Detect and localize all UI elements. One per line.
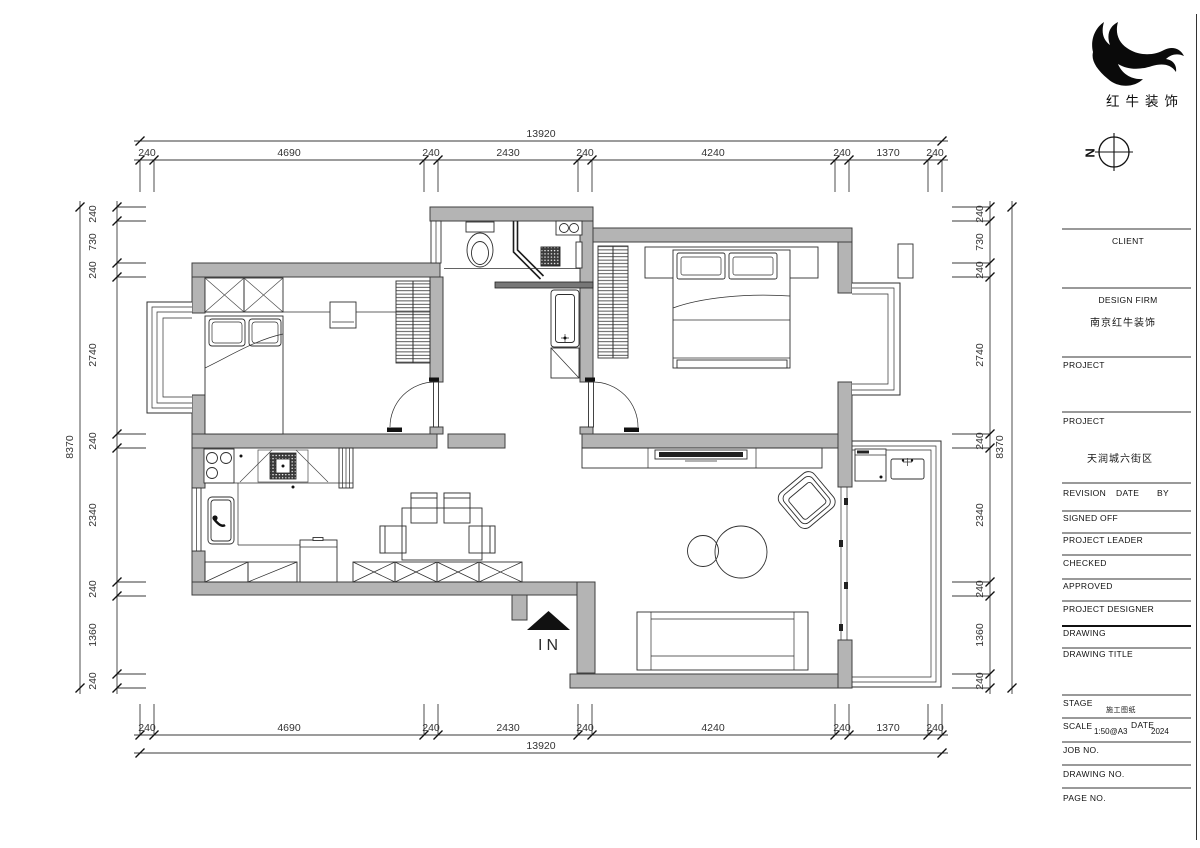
dim: 240 bbox=[974, 580, 986, 598]
dim: 240 bbox=[974, 261, 986, 279]
dim: 4690 bbox=[277, 722, 301, 734]
dim: 1370 bbox=[876, 722, 900, 734]
refrigerator bbox=[300, 538, 337, 583]
kitchen-window bbox=[192, 488, 201, 551]
dim-total-right: 8370 bbox=[994, 435, 1006, 459]
balcony bbox=[855, 449, 924, 481]
radiator bbox=[396, 281, 430, 363]
north-compass-icon: N bbox=[1083, 133, 1133, 171]
vanity-niche bbox=[551, 290, 579, 378]
field-date: DATE bbox=[1116, 488, 1139, 498]
armchair bbox=[775, 468, 838, 531]
dim: 2430 bbox=[496, 722, 520, 734]
dim: 240 bbox=[422, 147, 440, 159]
dim-total-left: 8370 bbox=[64, 435, 76, 459]
dim: 240 bbox=[87, 205, 99, 223]
dim: 240 bbox=[576, 147, 594, 159]
field-stage: STAGE bbox=[1063, 698, 1093, 708]
bathroom-window bbox=[431, 221, 441, 263]
entrance-label: IN bbox=[538, 637, 562, 654]
dim: 2340 bbox=[87, 503, 99, 527]
dim: 240 bbox=[422, 722, 440, 734]
dim-total-top: 13920 bbox=[526, 128, 555, 140]
sofa bbox=[637, 612, 808, 670]
stove bbox=[204, 449, 243, 483]
design-firm-value: 南京红牛装饰 bbox=[1090, 316, 1156, 329]
field-by: BY bbox=[1157, 488, 1169, 498]
tv-cabinet bbox=[582, 448, 822, 468]
shower-partition bbox=[514, 221, 544, 279]
dim: 1360 bbox=[87, 623, 99, 647]
dim: 240 bbox=[833, 147, 851, 159]
bedroom-right bbox=[598, 246, 818, 368]
dim: 730 bbox=[974, 233, 986, 251]
dim: 240 bbox=[87, 261, 99, 279]
dim: 240 bbox=[87, 672, 99, 690]
dim: 4690 bbox=[277, 147, 301, 159]
brand-name: 红牛装饰 bbox=[1106, 94, 1184, 109]
dim: 1360 bbox=[974, 623, 986, 647]
dim: 240 bbox=[87, 580, 99, 598]
bed-double bbox=[645, 247, 818, 368]
dim: 240 bbox=[926, 147, 944, 159]
kitchen bbox=[204, 448, 353, 582]
bedroom-left-door bbox=[387, 378, 439, 433]
field-client: CLIENT bbox=[1112, 236, 1144, 246]
floor-drain bbox=[541, 247, 560, 266]
coffee-tables bbox=[688, 526, 768, 578]
field-drawing: DRAWING bbox=[1063, 628, 1106, 638]
balcony-sliding-door bbox=[839, 487, 848, 640]
date-value: 2024 bbox=[1151, 727, 1169, 736]
doors bbox=[387, 378, 639, 433]
toilet bbox=[466, 222, 494, 267]
dim: 240 bbox=[576, 722, 594, 734]
nightstand bbox=[330, 302, 356, 328]
bedroom-right-door bbox=[585, 378, 639, 433]
radiator-small bbox=[339, 448, 353, 488]
dim: 2340 bbox=[974, 503, 986, 527]
brand-logo-icon bbox=[1092, 22, 1184, 86]
bedroom-left bbox=[205, 278, 430, 434]
bathroom bbox=[444, 221, 593, 378]
field-checked: CHECKED bbox=[1063, 558, 1107, 568]
dim: 240 bbox=[974, 672, 986, 690]
bay-window-right bbox=[852, 283, 900, 395]
field-page-no: PAGE NO. bbox=[1063, 793, 1106, 803]
floor-plan-sheet: IN N bbox=[0, 0, 1200, 848]
field-approved: APPROVED bbox=[1063, 581, 1113, 591]
dim: 240 bbox=[138, 722, 156, 734]
dim: 2740 bbox=[87, 343, 99, 367]
wardrobe bbox=[205, 278, 283, 312]
dim: 240 bbox=[833, 722, 851, 734]
sideboard bbox=[353, 562, 522, 582]
dim: 2430 bbox=[496, 147, 520, 159]
north-label: N bbox=[1083, 148, 1098, 157]
dim: 4240 bbox=[701, 147, 725, 159]
field-project-designer: PROJECT DESIGNER bbox=[1063, 604, 1154, 614]
dim: 240 bbox=[974, 432, 986, 450]
entrance-marker: IN bbox=[527, 611, 570, 654]
field-job-no: JOB NO. bbox=[1063, 745, 1099, 755]
project-value: 天润城六街区 bbox=[1087, 452, 1153, 465]
dim: 240 bbox=[87, 432, 99, 450]
field-design-firm: DESIGN FIRM bbox=[1098, 295, 1157, 305]
base-cabinets bbox=[205, 562, 297, 582]
bay-window-left bbox=[147, 302, 192, 413]
balcony-sink bbox=[891, 458, 924, 479]
field-project-2: PROJECT bbox=[1063, 416, 1105, 426]
field-revision: REVISION bbox=[1063, 488, 1106, 498]
bed-single bbox=[205, 316, 283, 434]
dim: 1370 bbox=[876, 147, 900, 159]
stage-value: 施工图纸 bbox=[1106, 705, 1136, 714]
dim: 2740 bbox=[974, 343, 986, 367]
drawing-canvas: IN N bbox=[0, 0, 1200, 848]
dim: 240 bbox=[926, 722, 944, 734]
dim: 4240 bbox=[701, 722, 725, 734]
counter-front bbox=[495, 282, 593, 288]
field-drawing-no: DRAWING NO. bbox=[1063, 769, 1125, 779]
field-scale: SCALE bbox=[1063, 721, 1092, 731]
scale-value: 1:50@A3 bbox=[1094, 727, 1128, 736]
dining-area bbox=[353, 493, 522, 582]
radiator bbox=[598, 246, 628, 358]
duct-shaft bbox=[898, 244, 913, 278]
kitchen-sink bbox=[208, 497, 234, 544]
dim: 240 bbox=[138, 147, 156, 159]
title-block: 红牛装饰 CLIENT DESIGN FIRM 南京红牛装饰 PROJECT P… bbox=[1062, 14, 1197, 840]
dim: 730 bbox=[87, 233, 99, 251]
dim: 240 bbox=[974, 205, 986, 223]
field-drawing-title: DRAWING TITLE bbox=[1063, 649, 1133, 659]
dim-total-bottom: 13920 bbox=[526, 740, 555, 752]
entrance-arrow-icon bbox=[527, 611, 570, 630]
field-signed-off: SIGNED OFF bbox=[1063, 513, 1118, 523]
living-room bbox=[582, 448, 838, 670]
field-project-1: PROJECT bbox=[1063, 360, 1105, 370]
washing-machine bbox=[855, 449, 886, 481]
field-project-leader: PROJECT LEADER bbox=[1063, 535, 1143, 545]
